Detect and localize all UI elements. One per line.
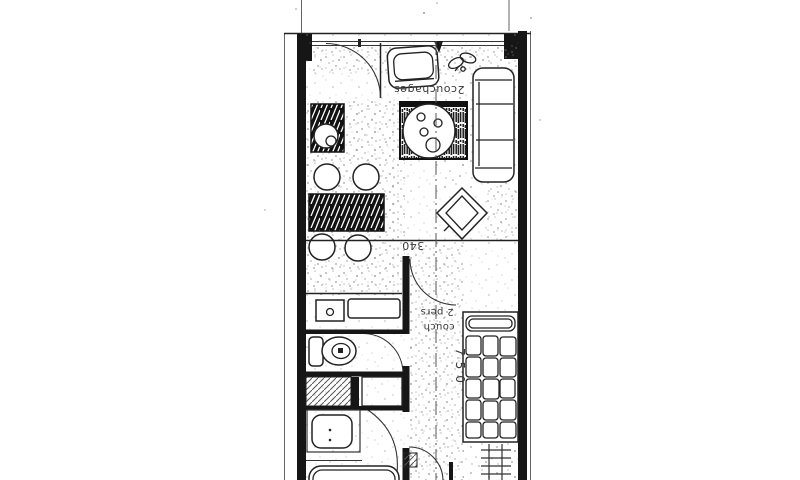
toilet-tank — [309, 337, 323, 366]
chair — [314, 164, 340, 190]
wall-wc-top — [306, 330, 409, 335]
wall-wc-bottom — [306, 372, 409, 377]
bathtub — [309, 466, 399, 480]
left-wall — [297, 34, 306, 480]
sofa — [473, 68, 514, 182]
cooktop — [316, 300, 344, 321]
chair — [309, 234, 335, 260]
shower-tray — [306, 377, 351, 406]
label-bed-type: couch — [423, 321, 454, 332]
scanned-floorplan-page: 2couchages 340 2 pers couch 750 — [0, 0, 800, 480]
floorplan-drawing: 2couchages 340 2 pers couch 750 — [0, 0, 800, 480]
double-bed — [463, 312, 518, 442]
kitchen-sink-unit — [311, 104, 344, 152]
right-wall — [518, 31, 527, 480]
label-bed-capacity: 2 pers — [420, 306, 453, 317]
label-sleeping-note: 2couchages — [394, 83, 465, 96]
worktop — [348, 299, 400, 318]
washbasin — [312, 415, 352, 448]
kitchen-table — [309, 194, 384, 231]
door-frame-stub — [449, 462, 453, 480]
toilet — [309, 337, 356, 366]
wall-pier-hatched — [404, 453, 417, 467]
label-length-dimension: 750 — [453, 348, 467, 389]
dining-table — [403, 104, 455, 158]
shower-partition — [351, 377, 359, 406]
chair — [353, 164, 379, 190]
label-width-dimension: 340 — [402, 239, 425, 252]
chair — [345, 235, 371, 261]
armchair — [387, 45, 440, 88]
